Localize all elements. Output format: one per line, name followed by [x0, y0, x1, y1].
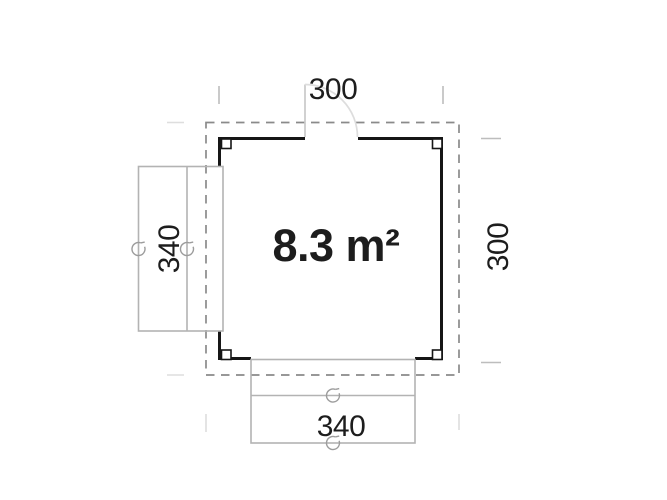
- area-label: 8.3 m²: [272, 220, 399, 272]
- dimension-label-top: 300: [309, 73, 358, 107]
- dimension-label-right: 300: [482, 223, 516, 272]
- corner-post-top-right: [433, 139, 443, 149]
- dimension-label-left-window: 340: [153, 225, 187, 274]
- corner-post-bottom-right: [433, 350, 443, 360]
- dimension-label-bottom-door: 340: [317, 410, 366, 444]
- corner-post-top-left: [222, 139, 232, 149]
- corner-post-bottom-left: [222, 350, 232, 360]
- floor-plan-canvas: 300 300 340 340 8.3 m²: [0, 0, 667, 500]
